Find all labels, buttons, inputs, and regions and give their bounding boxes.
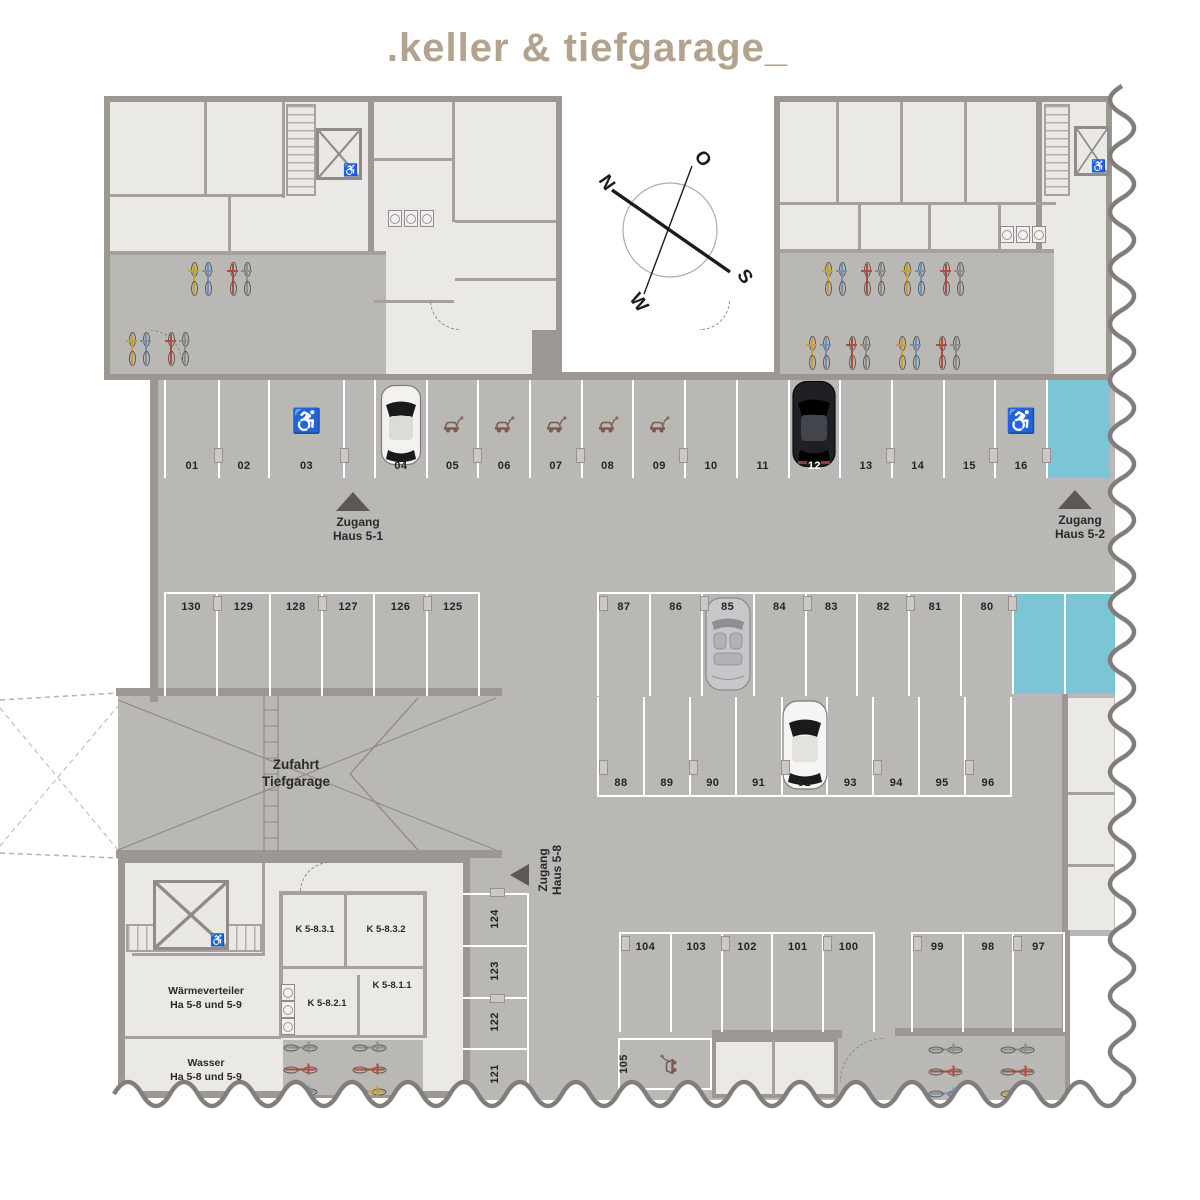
appliance-icon (420, 210, 434, 227)
parking-spot: 93 (826, 697, 872, 795)
bicycle-icon (820, 336, 831, 370)
appliance-icon (388, 210, 402, 227)
wall (110, 194, 285, 197)
spot-number: 05 (428, 460, 478, 472)
bicycle-icon (188, 262, 199, 296)
pillar (721, 936, 730, 951)
wall (455, 220, 556, 223)
wall (262, 863, 265, 956)
wall (452, 102, 455, 222)
parking-spot: 81 (908, 594, 960, 696)
parking-spot-ev: 06 (477, 380, 529, 478)
spot-number: 126 (375, 601, 425, 613)
spot-number: 105 (618, 1034, 630, 1094)
spot-number: 92 (783, 777, 827, 789)
bicycle-icon (822, 262, 833, 296)
parking-spot: 80 (960, 594, 1012, 696)
spot-number: 85 (703, 601, 753, 613)
wall (204, 102, 207, 194)
room-label: WasserHa 5-8 und 5-9 (134, 1056, 278, 1084)
spot-number: 04 (376, 460, 426, 472)
floor-plan-canvas: .keller & tiefgarage_ ♿ (0, 0, 1200, 1200)
car-white-icon (378, 384, 424, 466)
bicycle-icon (284, 1064, 318, 1075)
wall (1068, 864, 1114, 867)
spot-number: 101 (773, 941, 822, 953)
pillar (989, 448, 998, 463)
access-label-haus-5-2: ZugangHaus 5-2 (1040, 513, 1120, 541)
spot-number: 127 (323, 601, 373, 613)
room-label: K 5-8.1.1 (361, 980, 423, 991)
parking-spot-ev: 07 (529, 380, 581, 478)
pillar (490, 888, 505, 897)
parking-row-north-right: 04 05 06 07 08 09 10 11 12 13 14 15 ♿16 (374, 380, 1046, 478)
spot-number: 03 (270, 460, 343, 472)
bicycle-icon (227, 262, 238, 296)
cellar-rooms-east (1068, 698, 1114, 930)
bicycle-icon (353, 1086, 387, 1097)
access-marker (510, 864, 529, 886)
parking-spot: 90 (689, 697, 735, 795)
wall (836, 102, 839, 202)
wall (858, 205, 861, 250)
parking-spot: 92 (781, 697, 827, 795)
pillar (886, 448, 895, 463)
wall (423, 891, 427, 1037)
spot-number: 13 (841, 460, 891, 472)
compass-east-label: O (690, 147, 716, 171)
pillar (621, 936, 630, 951)
parking-spot: 103 (670, 934, 721, 1032)
wall (125, 1036, 281, 1039)
ev-charging-icon (442, 416, 464, 434)
appliance-icon (1032, 226, 1046, 243)
wall (772, 1040, 775, 1096)
parking-spot: 125 (426, 594, 480, 696)
wall (228, 197, 231, 253)
bicycle-icon (1001, 1088, 1035, 1099)
spot-number: 88 (599, 777, 643, 789)
wall (532, 330, 562, 380)
appliance-icon (404, 210, 418, 227)
wheelchair-icon: ♿ (1091, 160, 1106, 172)
pillar (965, 760, 974, 775)
spot-number: 86 (651, 601, 701, 613)
bicycle-icon (929, 1088, 963, 1099)
parking-spot: 101 (771, 934, 822, 1032)
parking-spot: 121 (463, 1050, 527, 1100)
bicycle-icon (896, 336, 907, 370)
parking-spot: 01 (164, 380, 218, 478)
pillar (873, 760, 882, 775)
room-label: K 5-8.3.2 (350, 924, 422, 935)
parking-spot: 12 (788, 380, 840, 478)
wall (964, 102, 967, 202)
spot-number: 14 (893, 460, 943, 472)
compass-south-label: S (732, 266, 756, 288)
spot-number: 91 (737, 777, 781, 789)
spot-number: 93 (828, 777, 872, 789)
compass-west-label: W (625, 289, 653, 316)
highlighted-spot (1046, 380, 1110, 478)
door-swing (700, 300, 730, 330)
parking-spot: 96 (964, 697, 1012, 795)
parking-spot-accessible: ♿16 (994, 380, 1046, 478)
wall (279, 966, 427, 969)
appliance-icon (1016, 226, 1030, 243)
spot-number: 12 (790, 460, 840, 472)
elevator: ♿ (1074, 126, 1110, 176)
pillar (700, 596, 709, 611)
parking-spot: 94 (872, 697, 918, 795)
pillar (423, 596, 432, 611)
spot-number: 08 (583, 460, 633, 472)
pillar (913, 936, 922, 951)
bicycle-icon (940, 262, 951, 296)
page-title: .keller & tiefgarage_ (0, 26, 1175, 71)
highlighted-spots (1012, 592, 1115, 694)
spot-number: 94 (874, 777, 918, 789)
wall (132, 953, 262, 956)
cellar-rooms-south (712, 1038, 838, 1098)
bicycle-icon (861, 262, 872, 296)
spot-number: 82 (858, 601, 908, 613)
parking-spot: 10 (684, 380, 736, 478)
pillar (803, 596, 812, 611)
parking-spot: 83 (805, 594, 857, 696)
pillar (1042, 448, 1051, 463)
parking-spot: 91 (735, 697, 781, 795)
pillar (473, 448, 482, 463)
pillar (214, 448, 223, 463)
parking-row-south-right: 99 98 97 (911, 932, 1065, 1032)
room-label: K 5-8.3.1 (285, 924, 345, 935)
parking-spot: 11 (736, 380, 788, 478)
spot-number: 98 (964, 941, 1013, 953)
spot-number: 02 (220, 460, 268, 472)
spot-number: 83 (807, 601, 857, 613)
spot-number: 81 (910, 601, 960, 613)
parking-spot-moto: 105 (618, 1038, 712, 1090)
pillar (679, 448, 688, 463)
spot-number: 130 (166, 601, 216, 613)
bicycle-icon (1001, 1066, 1035, 1077)
compass-rose: N O S W (588, 146, 758, 316)
spot-number: 10 (686, 460, 736, 472)
highlighted-spot (1064, 594, 1116, 694)
bicycle-icon (875, 262, 886, 296)
spot-number: 128 (271, 601, 321, 613)
pillar (689, 760, 698, 775)
bicycle-icon (836, 262, 847, 296)
elevator: ♿ (316, 128, 362, 180)
wheelchair-icon: ♿ (270, 410, 343, 434)
pillar (1008, 596, 1017, 611)
appliance-icon (281, 1001, 295, 1018)
bicycle-icon (284, 1086, 318, 1097)
parking-row-south-left: 104 103 102 101 100 (619, 932, 875, 1032)
wall (780, 202, 1056, 205)
parking-row-north-left: 01 02 ♿03 (164, 380, 345, 478)
spot-number: 121 (489, 1042, 501, 1106)
access-marker (1058, 490, 1092, 509)
ev-charging-icon (493, 416, 515, 434)
bicycle-icon (1001, 1044, 1035, 1055)
wall (110, 251, 386, 255)
spot-number: 89 (645, 777, 689, 789)
parking-spot: 13 (839, 380, 891, 478)
room-label: WärmeverteilerHa 5-8 und 5-9 (134, 984, 278, 1012)
bicycle-icon (910, 336, 921, 370)
spot-number: 01 (166, 460, 218, 472)
access-marker (336, 492, 370, 511)
appliance-icon (281, 984, 295, 1001)
parking-spot: 02 (218, 380, 268, 478)
parking-spot: 14 (891, 380, 943, 478)
room-label: K 5-8.2.1 (296, 998, 358, 1009)
parking-spot: 98 (962, 934, 1013, 1032)
spot-number: 09 (634, 460, 684, 472)
parking-spot: 82 (856, 594, 908, 696)
pillar (213, 596, 222, 611)
wheelchair-icon: ♿ (343, 164, 358, 176)
parking-spot-ev: 08 (581, 380, 633, 478)
access-label-haus-5-8: ZugangHaus 5-8 (536, 828, 564, 912)
ramp-label: ZufahrtTiefgarage (196, 756, 396, 790)
parking-spot: 15 (943, 380, 995, 478)
parking-spot: 89 (643, 697, 689, 795)
driveway-stub (0, 688, 118, 863)
parking-spot: 88 (597, 697, 643, 795)
spot-number: 90 (691, 777, 735, 789)
bicycle-icon (806, 336, 817, 370)
parking-spot: 04 (374, 380, 426, 478)
bicycle-icon (353, 1064, 387, 1075)
spot-number: 84 (755, 601, 805, 613)
bicycle-icon (241, 262, 252, 296)
pillar (490, 994, 505, 1003)
parking-spot: 127 (321, 594, 373, 696)
ev-charging-icon (545, 416, 567, 434)
pillar (318, 596, 327, 611)
bicycle-icon (901, 262, 912, 296)
wall (455, 278, 556, 281)
bicycle-icon (950, 336, 961, 370)
parking-spot-ev: 09 (632, 380, 684, 478)
exterior-area (1070, 936, 1115, 1100)
ev-charging-icon (597, 416, 619, 434)
wall (150, 372, 158, 702)
pillar (823, 936, 832, 951)
appliance-icon (281, 1018, 295, 1035)
wall (928, 205, 931, 250)
spot-number: 16 (996, 460, 1046, 472)
highlighted-spot (1012, 594, 1064, 694)
parking-spot: 126 (373, 594, 425, 696)
pillar (340, 448, 349, 463)
wall (374, 158, 454, 161)
spot-number: 06 (479, 460, 529, 472)
car-black-icon (789, 380, 839, 468)
spot-number: 103 (672, 941, 721, 953)
appliance-icon (1000, 226, 1014, 243)
wall (279, 1035, 427, 1038)
parking-spot-ev: 05 (426, 380, 478, 478)
access-label-haus-5-1: ZugangHaus 5-1 (318, 515, 398, 543)
spot-number: 15 (945, 460, 995, 472)
bicycle-icon (915, 262, 926, 296)
wheelchair-icon: ♿ (210, 934, 225, 946)
wall (780, 249, 1054, 253)
spot-number: 96 (966, 777, 1010, 789)
bicycle-icon (846, 336, 857, 370)
bicycle-icon (353, 1042, 387, 1053)
bicycle-icon (929, 1044, 963, 1055)
pillar (576, 448, 585, 463)
bicycle-icon (202, 262, 213, 296)
spot-number: 125 (428, 601, 478, 613)
elevator: ♿ (153, 880, 229, 950)
bicycle-icon (126, 332, 137, 366)
bicycle-icon (929, 1066, 963, 1077)
wheelchair-icon: ♿ (996, 410, 1046, 434)
parking-spot: 86 (649, 594, 701, 696)
bicycle-icon (954, 262, 965, 296)
spot-number: 129 (218, 601, 268, 613)
parking-spot: 128 (269, 594, 321, 696)
parking-spot: 95 (918, 697, 964, 795)
stairs (1044, 104, 1070, 196)
wall (1068, 792, 1114, 795)
ev-charging-icon (660, 1054, 678, 1076)
spot-number: 07 (531, 460, 581, 472)
parking-spot: 84 (753, 594, 805, 696)
stairs (286, 104, 316, 196)
wall (282, 102, 285, 198)
parking-spot: 129 (216, 594, 268, 696)
parking-spot: 130 (164, 594, 216, 696)
pillar (1013, 936, 1022, 951)
pillar (599, 760, 608, 775)
wall (900, 102, 903, 202)
pillar (906, 596, 915, 611)
ev-charging-icon (648, 416, 670, 434)
spot-number: 95 (920, 777, 964, 789)
bicycle-icon (860, 336, 871, 370)
pillar (599, 596, 608, 611)
spot-number: 80 (962, 601, 1012, 613)
pillar (781, 760, 790, 775)
bicycle-icon (284, 1042, 318, 1053)
spot-number: 11 (738, 460, 788, 472)
bicycle-icon (936, 336, 947, 370)
parking-spot-accessible: ♿03 (268, 380, 345, 478)
parking-row-mid-east-lower: 88 89 90 91 92 93 94 95 96 (597, 697, 1012, 797)
